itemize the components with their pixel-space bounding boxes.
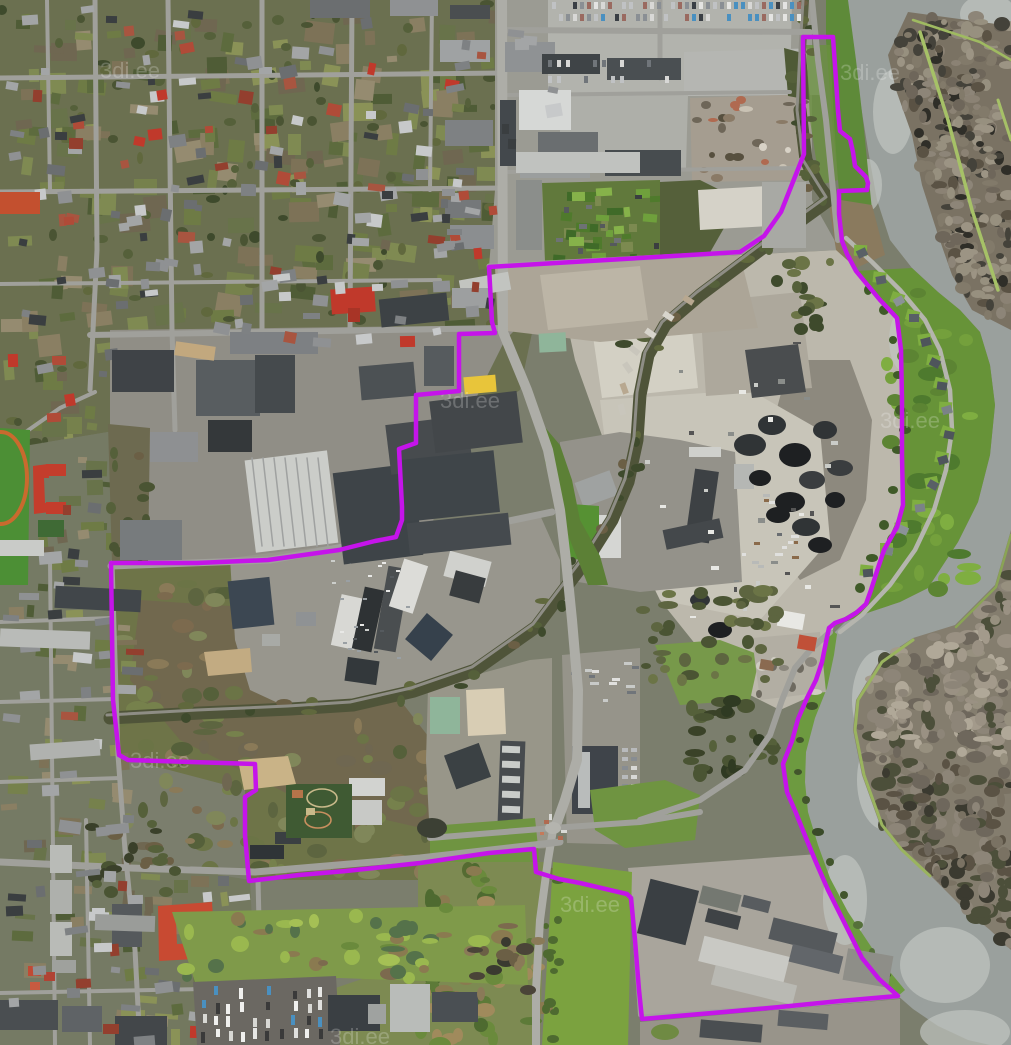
svg-text:3di.ee: 3di.ee [880, 408, 940, 433]
svg-text:3di.ee: 3di.ee [840, 60, 900, 85]
svg-text:3di.ee: 3di.ee [560, 892, 620, 917]
svg-text:3di.ee: 3di.ee [330, 1024, 390, 1045]
svg-text:3di.ee: 3di.ee [100, 58, 160, 83]
